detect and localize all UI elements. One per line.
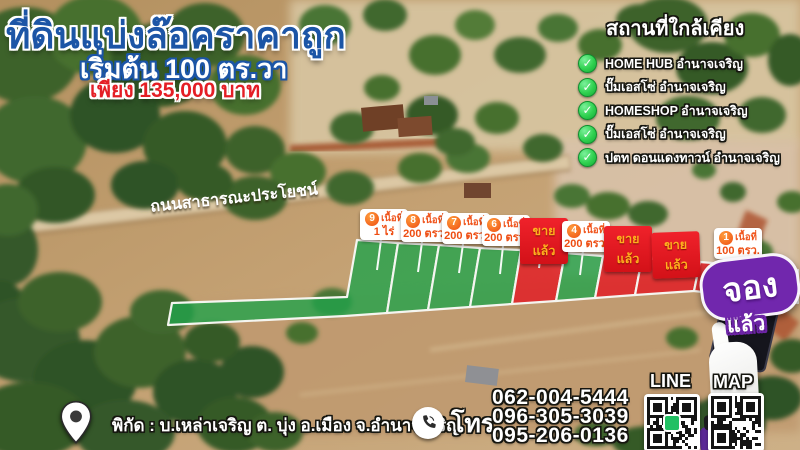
nearby-item: ✓ HOME HUB อำนาจเจริญ [578, 52, 798, 76]
line-qr-code [644, 394, 700, 450]
nearby-item-label: HOMESHOP อำนาจเจริญ [605, 101, 748, 121]
phone-icon [412, 407, 444, 439]
phone-numbers: 062-004-5444 096-305-3039 095-206-0136 [492, 388, 629, 445]
nearby-item-label: HOME HUB อำนาจเจริญ [605, 54, 743, 74]
location-text: พิกัด : บ.เหล่าเจริญ ต. บุ่ง อ.เมือง จ.อ… [112, 412, 461, 439]
plot-label-4: 4 เนื้อที่ 200 ตรว. [562, 221, 610, 252]
plot-number-badge: 4 [567, 224, 581, 238]
ad-poster: ที่ดินแบ่งล๊อคราคาถูก เริ่มต้น 100 ตร.วา… [0, 0, 800, 450]
plot-number-badge: 7 [447, 216, 461, 230]
area-label: เนื้อที่ [381, 211, 403, 226]
area-value: 200 ตรว. [563, 238, 609, 250]
nearby-item-label: ปั๊มเอสโซ่ อำนาจเจริญ [605, 77, 726, 97]
line-logo-icon [663, 414, 681, 432]
map-qr-code [708, 393, 764, 450]
location-pin-icon [55, 400, 97, 446]
check-icon: ✓ [578, 78, 597, 97]
nearby-item: ✓ ปั๊มเอสโซ่ อำนาจเจริญ [578, 76, 798, 100]
phone-number: 095-206-0136 [492, 426, 629, 445]
reserved-text-line2: แล้ว [726, 307, 766, 343]
nearby-item-label: ปตท ดอนแดงทาวน์ อำนาจเจริญ [605, 148, 780, 168]
area-label: เนื้อที่ [422, 213, 444, 228]
nearby-item-label: ปั๊มเอสโซ่ อำนาจเจริญ [605, 124, 726, 144]
nearby-item: ✓ HOMESHOP อำนาจเจริญ [578, 99, 798, 123]
nearby-item: ✓ ปั๊มเอสโซ่ อำนาจเจริญ [578, 123, 798, 147]
price-badge: เพียง 135,000 บาท [90, 74, 260, 107]
sold-label: ขายแล้ว [520, 218, 568, 264]
plot-number-badge: 8 [406, 214, 420, 228]
check-icon: ✓ [578, 101, 597, 120]
area-label: เนื้อที่ [735, 230, 757, 245]
plot-number-badge: 1 [719, 231, 733, 245]
sold-label: ขายแล้ว [604, 226, 652, 272]
plot-number-badge: 9 [365, 212, 379, 226]
check-icon: ✓ [578, 125, 597, 144]
area-label: เนื้อที่ [583, 223, 605, 238]
line-label: LINE [650, 371, 691, 392]
nearby-places-panel: สถานที่ใกล้เคียง ✓ HOME HUB อำนาจเจริญ ✓… [578, 12, 798, 170]
plot-9-area [168, 240, 398, 325]
nearby-item: ✓ ปตท ดอนแดงทาวน์ อำนาจเจริญ [578, 146, 798, 170]
check-icon: ✓ [578, 54, 597, 73]
sold-label: ขายแล้ว [651, 231, 701, 279]
plot-number-badge: 6 [487, 218, 501, 232]
nearby-title: สถานที่ใกล้เคียง [606, 12, 798, 44]
check-icon: ✓ [578, 148, 597, 167]
map-label: MAP [713, 372, 753, 393]
phone-label: โทร [451, 404, 494, 444]
